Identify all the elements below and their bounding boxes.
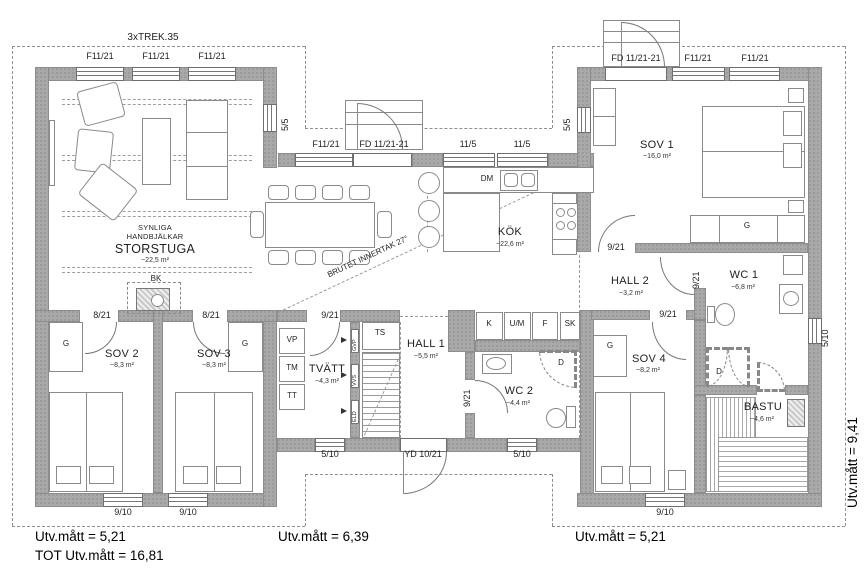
door-label: YD 10/21 (404, 450, 442, 459)
window-label: F11/21 (86, 52, 113, 61)
dishwasher-label: DM (481, 175, 493, 183)
door-swing-arc-bastu (757, 362, 785, 392)
bar-stool (418, 200, 440, 222)
bar-stool (418, 172, 440, 194)
arrow-icon (341, 337, 347, 343)
burner (567, 208, 576, 217)
room-area: ~3,2 m² (619, 290, 643, 297)
sofa-cushion-line (186, 166, 228, 167)
room-name-wc2: WC 2 (505, 386, 534, 398)
wall (577, 67, 591, 252)
toilet-bowl (546, 408, 566, 428)
washbasin-bowl (783, 291, 799, 306)
chair (349, 185, 370, 200)
truss-note: 3xTREK.35 (127, 33, 178, 44)
wardrobe-label: G (242, 340, 248, 348)
wall (35, 310, 80, 322)
window-f11-21 (188, 67, 236, 81)
sauna-bench (718, 437, 808, 492)
window-f11-21 (76, 67, 124, 81)
toilet-tank (566, 406, 576, 428)
window-label: 11/5 (514, 140, 531, 149)
wall (263, 310, 277, 507)
room-name-kok: KÖK (498, 227, 522, 239)
room-name-sov1: SOV 1 (640, 140, 674, 152)
window-label: 5/5 (562, 118, 572, 131)
room-area: ~8,2 m² (636, 367, 660, 374)
room-name-tvatt: TVÄTT (309, 364, 345, 376)
door-swing-arc-tvatt (310, 322, 340, 356)
window-label: F11/21 (312, 140, 339, 149)
wall (448, 310, 475, 352)
wall (591, 310, 650, 320)
toilet-tank (707, 306, 715, 323)
wardrobe-label: G (607, 342, 613, 350)
room-name-bastu: BASTU (744, 402, 782, 414)
window-label: 5/5 (280, 118, 290, 131)
room-name-hall2: HALL 2 (611, 276, 649, 288)
wall (278, 153, 295, 167)
nightstand (668, 470, 686, 490)
wall (35, 67, 49, 507)
shower-door-arc (728, 347, 750, 387)
window-label: 5/10 (321, 450, 339, 459)
pillow (629, 466, 651, 484)
door-fd-sov1 (605, 67, 667, 81)
wardrobe-divider (777, 215, 778, 243)
burner (567, 221, 576, 230)
room-area: ~22,5 m² (141, 257, 169, 264)
stair-dash-line (400, 322, 401, 438)
arrow-icon (341, 408, 347, 414)
sauna-heater (787, 399, 805, 427)
burner (556, 221, 565, 230)
chair (322, 250, 343, 265)
wardrobe-label: G (63, 340, 69, 348)
door-label: 9/21 (321, 311, 339, 320)
room-note: HANDBJÄLKAR (127, 233, 184, 241)
shaft-label: ELD (352, 411, 358, 422)
wall (35, 493, 277, 507)
room-name-sov2: SOV 2 (105, 349, 139, 361)
wall (694, 395, 706, 493)
coffee-table (142, 118, 171, 185)
oven-micro-label: U/M (510, 320, 525, 328)
tv-bench (49, 120, 55, 186)
room-note: SYNLIGA (138, 224, 172, 232)
dimension-note: Utv.mått = 5,21 (35, 529, 126, 544)
window-label: 5/10 (513, 450, 531, 459)
wall (808, 67, 822, 507)
room-area: ~6,8 m² (731, 284, 755, 291)
wall (345, 438, 400, 452)
window-label: 9/10 (114, 508, 132, 517)
window-f11-21 (729, 67, 780, 81)
eaves-line (305, 46, 306, 128)
shower-door-arc-wc2 (539, 350, 577, 388)
closet-label: TS (375, 329, 385, 337)
window-9-10 (168, 493, 208, 507)
window-label: F11/21 (198, 52, 225, 61)
window-label: 11/5 (460, 140, 477, 149)
door-swing-arc-wc1 (660, 257, 694, 295)
eaves-line (552, 526, 845, 527)
room-name-sov4: SOV 4 (632, 354, 666, 366)
pillow (783, 111, 802, 136)
wardrobe (593, 88, 616, 146)
wall (447, 438, 507, 452)
armchair (76, 81, 126, 127)
wardrobe-label: G (744, 222, 750, 230)
nightstand (788, 88, 804, 103)
room-area: ~8,3 m² (110, 362, 134, 369)
fireplace-label: BK (151, 275, 162, 283)
room-area: ~5,5 m² (414, 353, 438, 360)
floor-plan: 3xTREK.35 F11/21 F11/21 F11/21 F11/21 FD… (0, 0, 864, 576)
room-name-sov3: SOV 3 (197, 349, 231, 361)
section-dash-line (579, 255, 580, 438)
opening-dash-line (400, 316, 448, 317)
window-label: 9/10 (656, 508, 674, 517)
wall (577, 493, 822, 507)
shelf (783, 255, 803, 275)
window-5-5 (263, 104, 277, 132)
dimension-note: Utv.mått = 6,39 (278, 529, 369, 544)
bed-split-line (86, 392, 87, 492)
chair (268, 250, 289, 265)
shower-label: D (716, 368, 722, 376)
dimension-note-total: TOT Utv.mått = 16,81 (35, 548, 164, 563)
toilet-bowl (715, 303, 735, 326)
kitchen-peninsula (443, 193, 500, 252)
shaft-label: GVP (352, 339, 358, 351)
eaves-line (552, 474, 553, 526)
pillow (89, 466, 114, 484)
sink-bowl (521, 173, 535, 187)
shaft-label: VVS (352, 375, 358, 386)
wall (465, 352, 475, 380)
wall (785, 385, 808, 395)
door-swing-arc-wc2 (475, 380, 508, 413)
door-label: FD 11/21-21 (359, 140, 408, 149)
freezer-label: F (543, 320, 548, 328)
heatpump-label: VP (287, 336, 298, 344)
wall (340, 310, 400, 322)
chair (268, 185, 289, 200)
room-area: ~4,6 m² (750, 416, 774, 423)
sofa (186, 100, 228, 200)
room-name-hall1: HALL 1 (407, 339, 445, 351)
window-9-10 (103, 493, 143, 507)
cabinet-label: SK (565, 320, 576, 328)
sink-bowl (504, 173, 518, 187)
eaves-line (12, 526, 305, 527)
window-label: 5/10 (820, 329, 830, 347)
room-name-wc1: WC 1 (730, 270, 759, 282)
door-label: 8/21 (202, 311, 220, 320)
dining-table (265, 202, 375, 248)
door-label: 9/21 (462, 389, 472, 407)
window-11-5 (443, 153, 495, 167)
window-5-5 (577, 107, 591, 133)
chair (295, 185, 316, 200)
window-label: F11/21 (142, 52, 169, 61)
door-label: 8/21 (93, 311, 111, 320)
window-label: 9/10 (179, 508, 197, 517)
dimension-note: Utv.mått = 5,21 (575, 529, 666, 544)
wall (277, 438, 315, 452)
eaves-line (552, 46, 553, 128)
pillow (56, 466, 81, 484)
room-area: ~16,0 m² (643, 153, 671, 160)
dimension-note-side: Utv.mått = 9,41 (845, 417, 860, 508)
eaves-line (305, 128, 552, 129)
ceiling-beam (62, 267, 252, 273)
fridge-label: K (486, 320, 491, 328)
pillow (601, 466, 623, 484)
pillow (216, 466, 241, 484)
door-label: 9/21 (691, 271, 701, 289)
room-area: ~4,3 m² (315, 378, 339, 385)
wall (580, 310, 594, 507)
door-leaf (357, 103, 358, 149)
window-11-5 (497, 153, 548, 167)
dryer-label: TT (287, 392, 297, 400)
sofa-cushion-line (186, 132, 228, 133)
ceiling-beam (62, 211, 252, 217)
eaves-line (305, 474, 306, 526)
window-f11-21 (672, 67, 725, 81)
window-label: F11/21 (741, 54, 768, 63)
wall (412, 153, 443, 167)
wall (694, 320, 706, 395)
window-f11-21 (295, 153, 353, 167)
window-label: F11/21 (684, 54, 711, 63)
washer-label: TM (286, 364, 298, 372)
wall (277, 310, 307, 322)
wardrobe-divider (719, 215, 720, 243)
room-area: ~22,6 m² (496, 241, 524, 248)
chair (322, 185, 343, 200)
burner (556, 208, 565, 217)
room-area: ~8,3 m² (202, 362, 226, 369)
chair (295, 250, 316, 265)
wardrobe-divider (593, 116, 616, 117)
eaves-line (12, 46, 305, 47)
wall (465, 413, 475, 438)
bed-split-line (214, 392, 215, 492)
door-label: 9/21 (607, 243, 625, 252)
wall (694, 288, 706, 320)
bar-stool (418, 226, 440, 248)
shower-label: D (558, 359, 564, 367)
eaves-line (12, 46, 13, 526)
flue (151, 294, 164, 307)
door-fd-kitchen (353, 153, 412, 167)
eaves-line (552, 46, 845, 47)
room-area: ~4,4 m² (506, 400, 530, 407)
chair (250, 211, 264, 238)
wall (153, 310, 163, 493)
pillow (183, 466, 208, 484)
door-label: 9/21 (659, 310, 677, 319)
window-9-10 (645, 493, 685, 507)
washbasin-bowl (486, 357, 506, 370)
pillow (783, 143, 802, 168)
room-name-storstuga: STORSTUGA (115, 243, 195, 256)
door-label: FD 11/21-21 (611, 54, 660, 63)
window-f11-21 (132, 67, 180, 81)
wall (635, 243, 808, 253)
chair (377, 211, 392, 238)
nightstand (788, 200, 804, 213)
